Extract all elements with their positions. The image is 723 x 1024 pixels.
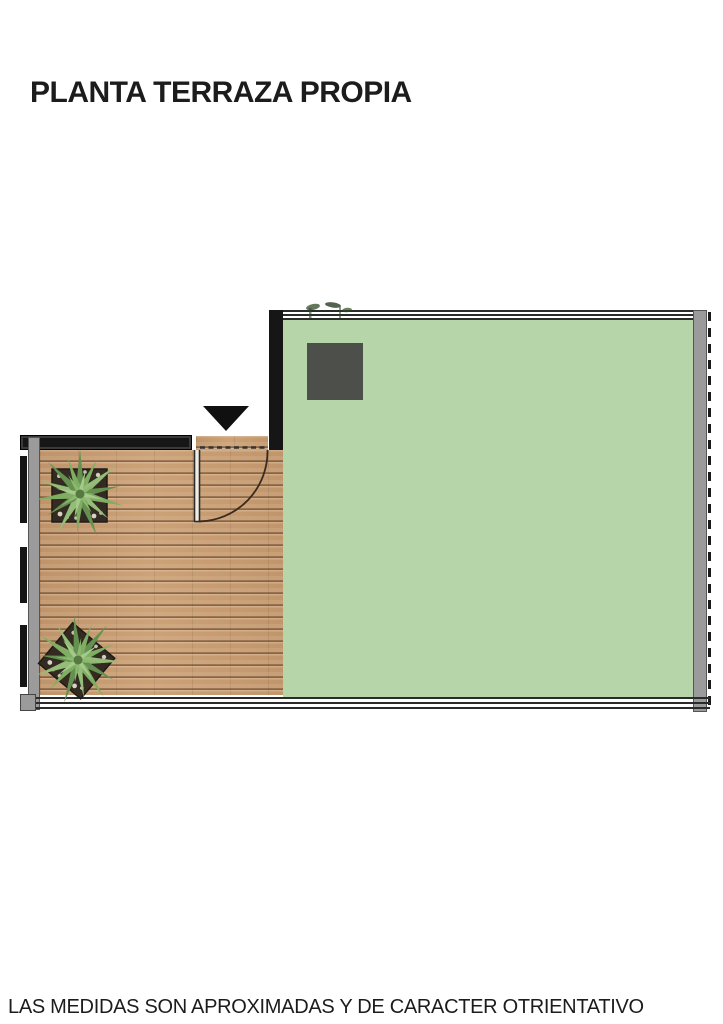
agave-plant-icon: [28, 610, 128, 710]
measures-disclaimer: LAS MEDIDAS SON APROXIMADAS Y DE CARACTE…: [8, 996, 644, 1019]
gray-wall-right: [693, 310, 707, 712]
railing-plant-smudges: [295, 298, 365, 324]
door-swing: [190, 430, 290, 530]
black-boundary-segment: [20, 625, 27, 687]
black-boundary-segment: [20, 456, 27, 523]
agave-plant-icon: [30, 444, 130, 544]
black-wall-left-of-green: [269, 310, 283, 450]
page-title: PLANTA TERRAZA PROPIA: [30, 76, 412, 110]
black-boundary-segment: [20, 547, 27, 603]
floorplan-page: PLANTA TERRAZA PROPIA: [0, 0, 723, 1024]
entrance-arrow-icon: [203, 406, 249, 431]
dashed-boundary-right: [708, 312, 711, 710]
rooftop-shaft-box: [307, 343, 363, 400]
